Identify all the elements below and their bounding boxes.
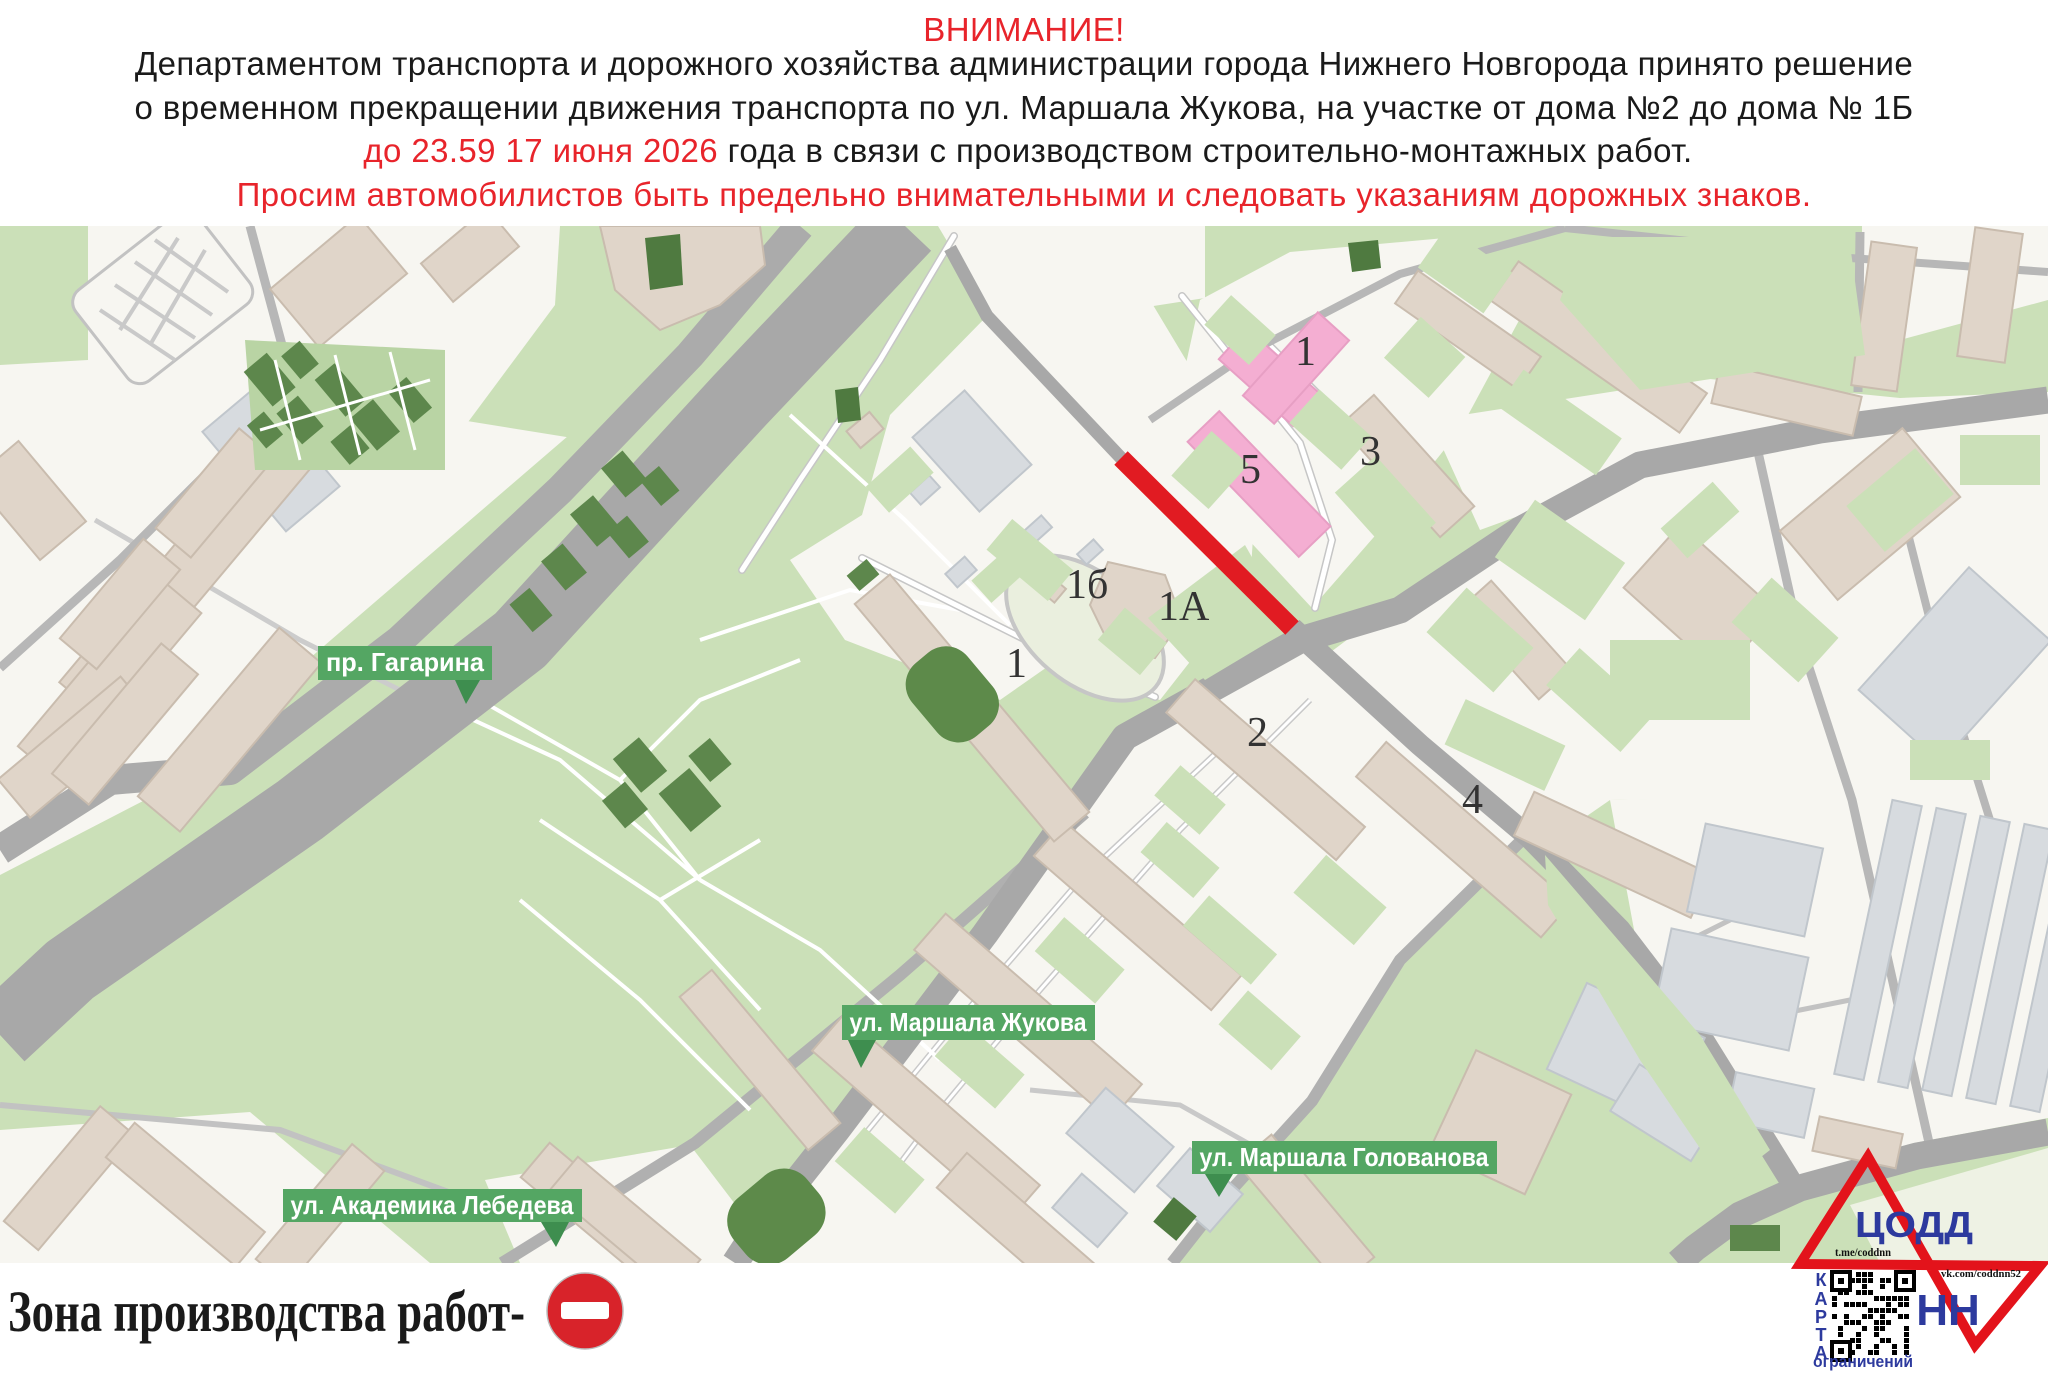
svg-text:1А: 1А: [1158, 584, 1210, 630]
svg-text:3: 3: [1360, 429, 1381, 475]
svg-text:4: 4: [1462, 777, 1483, 823]
svg-text:Департаментом транспорта и дор: Департаментом транспорта и дорожного хоз…: [135, 45, 1913, 82]
svg-text:t.me/coddnn: t.me/coddnn: [1835, 1245, 1891, 1259]
svg-text:Просим автомобилистов быть пре: Просим автомобилистов быть предельно вни…: [237, 176, 1812, 213]
svg-text:Р: Р: [1815, 1307, 1827, 1327]
svg-text:ул. Маршала Голованова: ул. Маршала Голованова: [1200, 1142, 1489, 1172]
svg-text:ВНИМАНИЕ!: ВНИМАНИЕ!: [923, 11, 1124, 48]
svg-text:ул. Маршала Жукова: ул. Маршала Жукова: [850, 1007, 1087, 1037]
svg-text:А: А: [1815, 1289, 1828, 1309]
svg-text:ул. Академика Лебедева: ул. Академика Лебедева: [291, 1190, 574, 1220]
svg-text:НН: НН: [1916, 1286, 1980, 1335]
svg-text:Т: Т: [1816, 1325, 1827, 1345]
svg-text:о временном прекращении движен: о временном прекращении движения транспо…: [134, 89, 1913, 126]
svg-text:ЦОДД: ЦОДД: [1855, 1204, 1973, 1245]
svg-text:К: К: [1816, 1270, 1828, 1290]
svg-text:1б: 1б: [1066, 562, 1108, 608]
svg-text:vk.com/coddnn52: vk.com/coddnn52: [1941, 1268, 2021, 1280]
svg-text:5: 5: [1240, 447, 1261, 493]
svg-text:до 23.59 17 июня 2026 года в с: до 23.59 17 июня 2026 года в связи с про…: [363, 132, 1692, 169]
svg-text:ограничений: ограничений: [1813, 1352, 1913, 1371]
svg-text:1: 1: [1006, 641, 1027, 687]
svg-text:2: 2: [1247, 710, 1268, 756]
svg-text:пр. Гагарина: пр. Гагарина: [326, 647, 485, 677]
svg-text:1: 1: [1295, 329, 1316, 375]
svg-text:Зона производства работ-: Зона производства работ-: [8, 1279, 525, 1344]
